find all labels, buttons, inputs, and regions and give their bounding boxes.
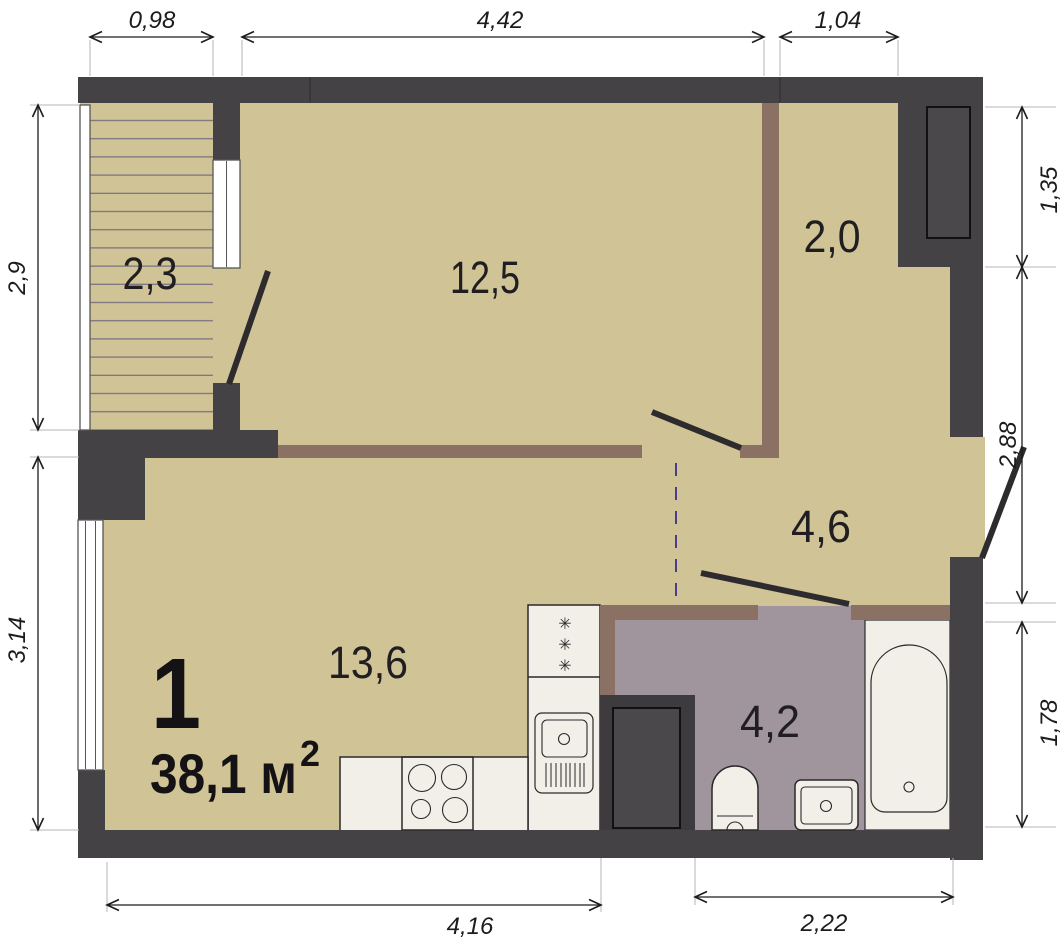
balcony-south-wall (78, 430, 278, 458)
balcony-south-pier (213, 383, 240, 430)
balcony-north-pier (213, 103, 240, 160)
bathroom-wall-left (600, 620, 615, 695)
dim-label-right-niche: 1,35 (1036, 166, 1063, 213)
vent-shaft-inner (613, 708, 680, 828)
fridge-asterisk-icon: ✳ (558, 635, 571, 654)
dim-label-left-living: 3,14 (4, 617, 31, 664)
wardrobe-hall-area-label: 2,0 (804, 211, 861, 262)
entry-hall-area-label: 4,6 (791, 501, 851, 552)
dim-label-right-bathroom: 1,78 (1036, 699, 1063, 746)
balcony-area-label: 2,3 (123, 248, 178, 299)
apartment-total-area-value: 38,1 м (150, 742, 297, 805)
right-wall-lower (950, 557, 983, 860)
entry-threshold-floor (950, 437, 985, 557)
toilet (712, 766, 758, 830)
kitchen-counter (340, 757, 528, 832)
left-wall-bottom (78, 770, 105, 832)
bottom-wall (78, 830, 983, 858)
dim-label-top-hall: 1,04 (815, 7, 862, 34)
dim-label-left-balcony: 2,9 (4, 261, 31, 295)
apartment-total-area-superscript: 2 (300, 733, 320, 774)
fridge-asterisk-icon: ✳ (558, 614, 571, 633)
floor-plan-svg: ✳ ✳ ✳ (0, 0, 1063, 939)
bathtub (871, 645, 947, 812)
dim-label-bottom-living: 4,16 (447, 913, 494, 939)
kitchen-living-area-label: 13,6 (328, 637, 408, 688)
dim-label-right-hall: 2,88 (995, 421, 1022, 469)
balcony-glazing-window (80, 105, 90, 430)
bathroom-wall-top-left (600, 605, 758, 620)
right-wall-upper (950, 263, 983, 437)
partition-bedroom-bottom (278, 445, 642, 458)
fridge-asterisk-icon: ✳ (558, 656, 571, 675)
partition-bedroom-hall (762, 103, 779, 458)
living-room-window (78, 520, 103, 770)
dim-label-top-balcony: 0,98 (129, 7, 176, 34)
apartment-total-area: 38,1 м2 (150, 733, 320, 805)
partition-hall-foot (740, 445, 779, 458)
dim-label-bottom-bathroom: 2,22 (800, 910, 848, 937)
wardrobe (927, 107, 970, 238)
bedroom-area-label: 12,5 (450, 252, 520, 303)
apartment-rooms-count: 1 (151, 638, 201, 750)
bathroom-area-label: 4,2 (740, 696, 800, 747)
bathroom-wall-top-right (851, 605, 950, 620)
top-wall (78, 77, 983, 103)
dim-label-top-bedroom: 4,42 (477, 7, 524, 34)
